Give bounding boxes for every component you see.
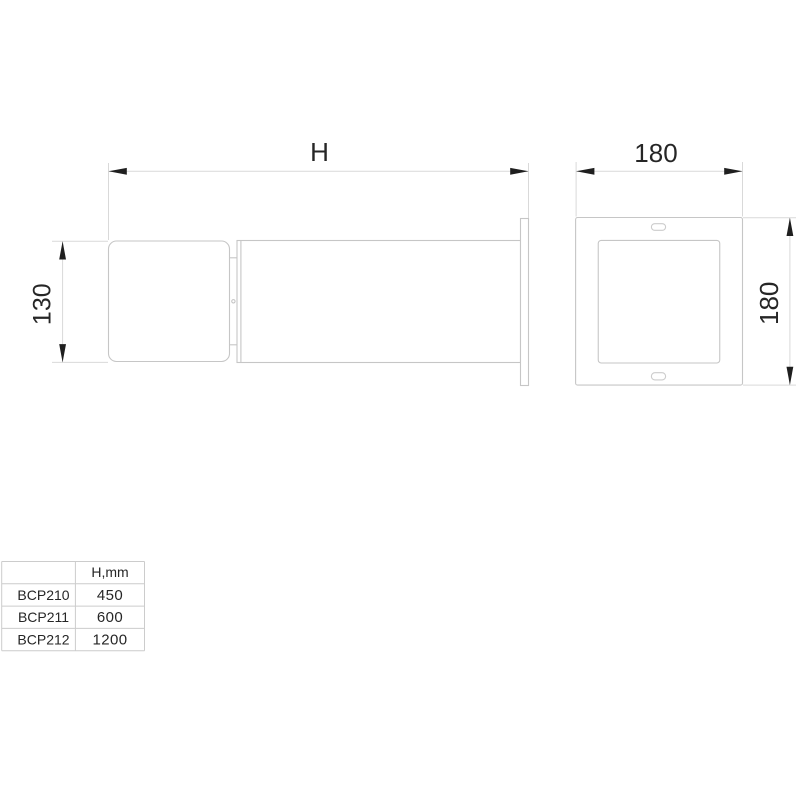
svg-text:BCP212: BCP212	[17, 631, 69, 647]
svg-text:180: 180	[754, 282, 784, 325]
svg-text:450: 450	[97, 587, 123, 604]
svg-text:BCP210: BCP210	[17, 587, 69, 603]
svg-text:1200: 1200	[93, 631, 128, 648]
svg-text:H,mm: H,mm	[91, 564, 128, 580]
svg-text:180: 180	[634, 138, 677, 168]
svg-text:130: 130	[29, 283, 57, 325]
svg-text:H: H	[310, 137, 329, 167]
svg-text:BCP211: BCP211	[18, 609, 69, 625]
svg-text:600: 600	[97, 609, 123, 626]
